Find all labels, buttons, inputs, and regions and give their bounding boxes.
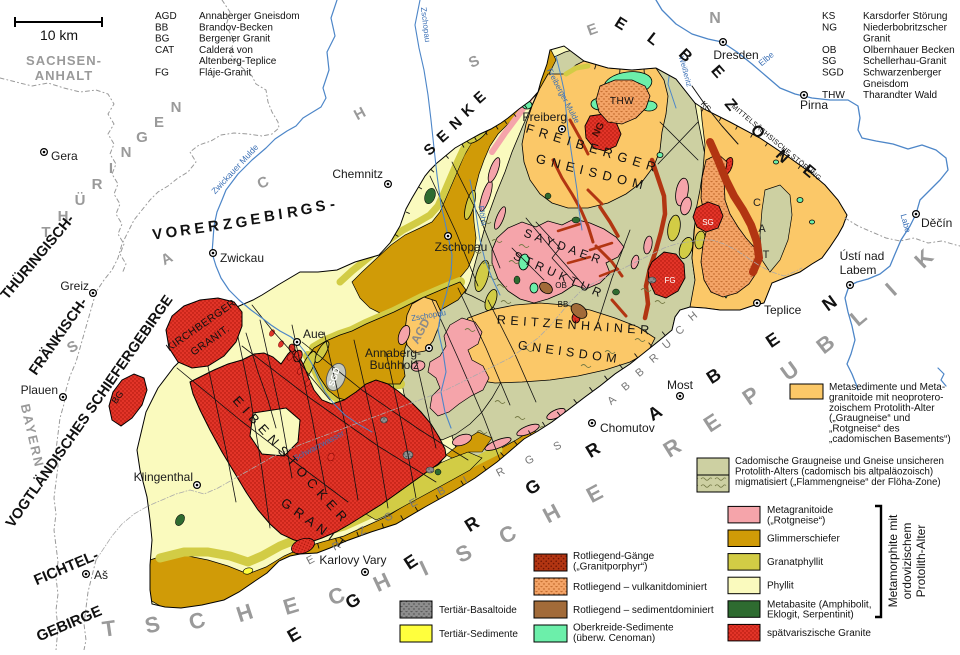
- svg-text:Most: Most: [667, 378, 694, 392]
- svg-text:Metamorphite mit: Metamorphite mit: [886, 514, 900, 607]
- svg-text:Schwarzenberger: Schwarzenberger: [863, 68, 942, 79]
- svg-text:Metabasite (Amphibolit,: Metabasite (Amphibolit,: [767, 599, 872, 610]
- svg-text:SG: SG: [702, 218, 714, 227]
- svg-text:Labem: Labem: [840, 263, 877, 277]
- svg-text:N: N: [171, 99, 182, 116]
- svg-text:Ü: Ü: [75, 192, 86, 209]
- svg-text:Bergener Granit: Bergener Granit: [199, 34, 270, 45]
- svg-text:Děčín: Děčín: [921, 216, 952, 230]
- svg-text:zoischem Protolith-Alter: zoischem Protolith-Alter: [829, 403, 935, 414]
- svg-text:G: G: [235, 213, 249, 231]
- svg-text:E: E: [193, 219, 205, 237]
- svg-text:Fláje-Granit: Fláje-Granit: [199, 68, 251, 79]
- svg-text:granitoide mit neoprotero-: granitoide mit neoprotero-: [829, 392, 944, 403]
- svg-text:V: V: [151, 225, 163, 243]
- svg-text:R: R: [286, 203, 299, 221]
- svg-text:THW: THW: [610, 96, 634, 107]
- svg-text:Metasedimente und Meta-: Metasedimente und Meta-: [829, 382, 945, 393]
- svg-text:FG: FG: [664, 276, 675, 285]
- svg-text:Chomutov: Chomutov: [600, 421, 655, 435]
- svg-text:10 km: 10 km: [40, 27, 78, 43]
- svg-text:SACHSEN-: SACHSEN-: [26, 53, 102, 68]
- svg-text:E: E: [249, 210, 261, 228]
- svg-text:Rotliegend-Gänge: Rotliegend-Gänge: [573, 551, 655, 562]
- svg-text:Eklogit, Serpentinit): Eklogit, Serpentinit): [767, 610, 854, 621]
- svg-text:Gneisdom: Gneisdom: [863, 79, 909, 90]
- svg-text:N: N: [121, 144, 132, 161]
- svg-text:Tharandter Wald: Tharandter Wald: [863, 90, 937, 101]
- svg-text:spätvariszische Granite: spätvariszische Granite: [767, 628, 871, 639]
- svg-text:N: N: [709, 10, 721, 27]
- svg-text:AGD: AGD: [155, 11, 177, 22]
- svg-text:Rotliegend – sedimentdominiert: Rotliegend – sedimentdominiert: [573, 605, 714, 616]
- svg-text:Protolith-Alters (cadomisch bi: Protolith-Alters (cadomisch bis altpaläo…: [735, 466, 933, 477]
- svg-text:S: S: [314, 197, 326, 215]
- svg-text:Aue: Aue: [303, 327, 325, 341]
- svg-text:OB: OB: [822, 45, 837, 56]
- svg-text:Gera: Gera: [51, 149, 78, 163]
- svg-text:BB: BB: [558, 300, 569, 309]
- svg-text:Granatphyllit: Granatphyllit: [767, 557, 823, 568]
- svg-text:Zschopau: Zschopau: [435, 240, 488, 254]
- svg-text:(„Granitporphyr“): („Granitporphyr“): [573, 561, 647, 572]
- svg-text:O: O: [165, 223, 179, 241]
- svg-text:Ústí nad: Ústí nad: [840, 248, 885, 263]
- svg-text:FG: FG: [155, 68, 169, 79]
- svg-text:ordovizischem: ordovizischem: [900, 523, 914, 600]
- svg-text:T: T: [763, 249, 770, 261]
- svg-text:R: R: [92, 176, 103, 193]
- svg-text:Plauen: Plauen: [21, 383, 58, 397]
- svg-text:SG: SG: [822, 56, 837, 67]
- svg-text:G: G: [136, 129, 148, 146]
- svg-text:Teplice: Teplice: [764, 303, 802, 317]
- svg-text:Karsdorfer Störung: Karsdorfer Störung: [863, 11, 948, 22]
- svg-text:(„Graugneise“ und: („Graugneise“ und: [829, 413, 910, 424]
- svg-text:BB: BB: [155, 22, 169, 33]
- svg-text:I: I: [109, 160, 113, 177]
- svg-text:THW: THW: [822, 90, 845, 101]
- svg-text:Tertiär-Basaltoide: Tertiär-Basaltoide: [439, 605, 517, 616]
- svg-text:„Rotgneise“ des: „Rotgneise“ des: [829, 424, 900, 435]
- svg-text:C: C: [753, 197, 761, 209]
- svg-text:Karlovy Vary: Karlovy Vary: [319, 553, 386, 567]
- svg-text:Olbernhauer Becken: Olbernhauer Becken: [863, 45, 955, 56]
- svg-text:R: R: [179, 221, 192, 239]
- svg-text:G: G: [300, 200, 314, 218]
- svg-text:migmatisiert („Flammengneise“: migmatisiert („Flammengneise“ der Flöha-…: [735, 477, 941, 488]
- svg-text:„cadomischen Basements“): „cadomischen Basements“): [829, 434, 951, 445]
- svg-text:Chemnitz: Chemnitz: [332, 167, 383, 181]
- svg-text:(überw. Cenoman): (überw. Cenoman): [573, 633, 655, 644]
- svg-text:B: B: [263, 207, 276, 225]
- svg-text:NG: NG: [822, 22, 837, 33]
- svg-text:Buchholz: Buchholz: [370, 358, 419, 372]
- svg-text:Oberkreide-Sedimente: Oberkreide-Sedimente: [573, 623, 674, 634]
- svg-text:Dresden: Dresden: [713, 48, 758, 62]
- svg-text:Brandov-Becken: Brandov-Becken: [199, 22, 273, 33]
- svg-text:R: R: [207, 217, 220, 235]
- svg-text:Glimmerschiefer: Glimmerschiefer: [767, 534, 840, 545]
- svg-text:ANHALT: ANHALT: [35, 68, 93, 83]
- svg-text:Greiz: Greiz: [60, 279, 89, 293]
- svg-text:OB: OB: [555, 281, 567, 290]
- svg-text:Aš: Aš: [94, 568, 108, 582]
- svg-text:Metagranitoide: Metagranitoide: [767, 505, 834, 516]
- svg-text:A: A: [758, 223, 766, 235]
- svg-text:SGD: SGD: [822, 68, 844, 79]
- svg-text:Klingenthal: Klingenthal: [134, 470, 193, 484]
- svg-text:Phyllit: Phyllit: [767, 581, 794, 592]
- svg-text:CAT: CAT: [155, 45, 174, 56]
- svg-text:Protolith-Alter: Protolith-Alter: [914, 525, 928, 598]
- svg-text:Niederbobritzscher: Niederbobritzscher: [863, 22, 948, 33]
- svg-text:Tertiär-Sedimente: Tertiär-Sedimente: [439, 629, 518, 640]
- svg-text:Schellerhau-Granit: Schellerhau-Granit: [863, 56, 947, 67]
- svg-text:KS: KS: [822, 11, 836, 22]
- svg-text:(„Rotgneise“): („Rotgneise“): [767, 515, 825, 526]
- svg-text:Annaberger Gneisdom: Annaberger Gneisdom: [199, 11, 300, 22]
- svg-text:Caldera von: Caldera von: [199, 45, 253, 56]
- svg-text:Granit: Granit: [863, 34, 890, 45]
- svg-text:E: E: [154, 114, 164, 131]
- svg-text:Altenberg-Teplice: Altenberg-Teplice: [199, 56, 277, 67]
- svg-text:Rotliegend – vulkanitdominiert: Rotliegend – vulkanitdominiert: [573, 582, 707, 593]
- svg-text:Cadomische Graugneise und Gnei: Cadomische Graugneise und Gneise unsiche…: [735, 456, 944, 467]
- svg-text:BG: BG: [155, 34, 170, 45]
- svg-text:Zwickau: Zwickau: [220, 251, 264, 265]
